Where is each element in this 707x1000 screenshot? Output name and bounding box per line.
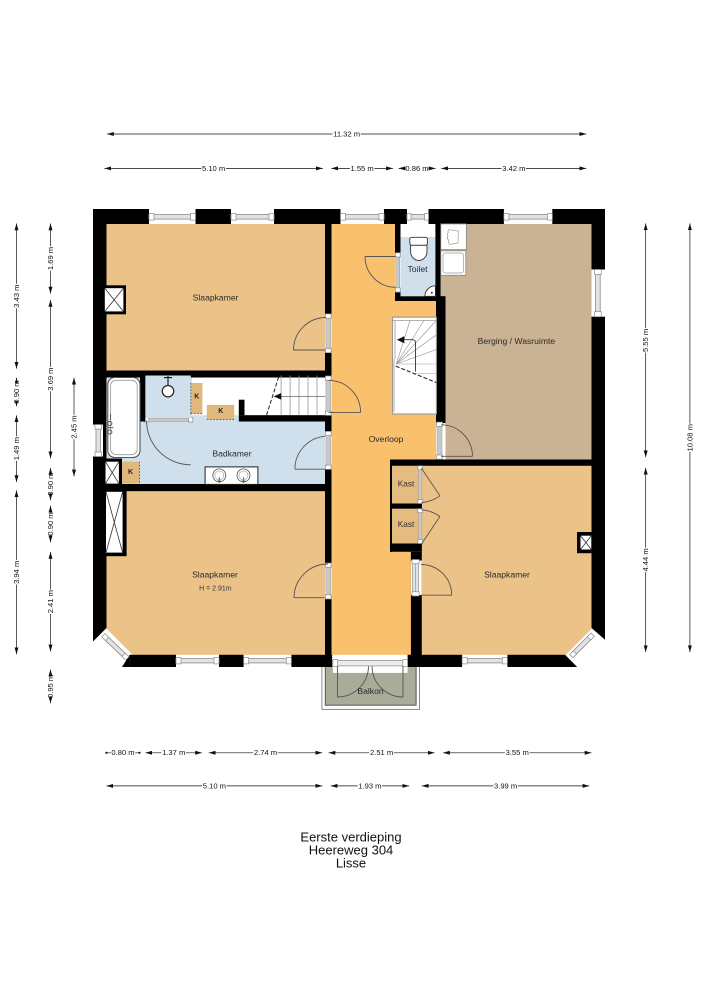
svg-text:Slaapkamer: Slaapkamer	[484, 570, 530, 580]
svg-text:1.37 m: 1.37 m	[162, 748, 185, 757]
svg-text:5.10 m: 5.10 m	[203, 781, 226, 790]
svg-text:Balkon: Balkon	[357, 686, 383, 696]
svg-text:H = 2.91m: H = 2.91m	[199, 585, 232, 592]
svg-text:11.32 m: 11.32 m	[333, 129, 360, 138]
svg-text:Slaapkamer: Slaapkamer	[193, 293, 239, 303]
svg-text:1.93 m: 1.93 m	[358, 781, 381, 790]
svg-text:3.94 m: 3.94 m	[12, 561, 21, 584]
svg-text:2.51 m: 2.51 m	[370, 748, 393, 757]
svg-text:3.69 m: 3.69 m	[46, 367, 55, 390]
svg-text:0.90 m: 0.90 m	[46, 472, 55, 495]
svg-text:3.99 m: 3.99 m	[494, 781, 517, 790]
svg-text:2.41 m: 2.41 m	[46, 590, 55, 613]
svg-text:Kast: Kast	[398, 519, 415, 529]
svg-text:0.95 m: 0.95 m	[46, 675, 55, 698]
svg-text:0.90 m: 0.90 m	[46, 512, 55, 535]
svg-text:Badkamer: Badkamer	[212, 449, 251, 459]
svg-text:0.80 m: 0.80 m	[111, 748, 134, 757]
svg-text:1.55 m: 1.55 m	[350, 164, 373, 173]
svg-text:3.42 m: 3.42 m	[502, 164, 525, 173]
svg-text:3.43 m: 3.43 m	[12, 284, 21, 307]
svg-text:1.69 m: 1.69 m	[46, 247, 55, 270]
svg-text:Lisse: Lisse	[336, 856, 366, 871]
svg-text:3.55 m: 3.55 m	[506, 748, 529, 757]
svg-text:5.10 m: 5.10 m	[202, 164, 225, 173]
svg-text:2.74 m: 2.74 m	[254, 748, 277, 757]
svg-text:Slaapkamer: Slaapkamer	[192, 570, 238, 580]
svg-text:K: K	[194, 394, 199, 401]
svg-text:Berging / Wasruimte: Berging / Wasruimte	[478, 336, 556, 346]
svg-text:Kast: Kast	[398, 479, 415, 489]
svg-text:0.90 m: 0.90 m	[12, 380, 21, 403]
svg-text:Toilet: Toilet	[407, 264, 428, 274]
svg-text:K: K	[218, 408, 223, 415]
svg-text:5.55 m: 5.55 m	[641, 329, 650, 352]
svg-text:0.86 m: 0.86 m	[405, 164, 428, 173]
svg-text:10.08 m: 10.08 m	[685, 424, 694, 451]
svg-text:2.45 m: 2.45 m	[69, 415, 78, 438]
svg-text:4.44 m: 4.44 m	[641, 548, 650, 571]
svg-text:K: K	[128, 469, 133, 476]
svg-text:Overloop: Overloop	[369, 434, 404, 444]
svg-text:1.49 m: 1.49 m	[12, 437, 21, 460]
